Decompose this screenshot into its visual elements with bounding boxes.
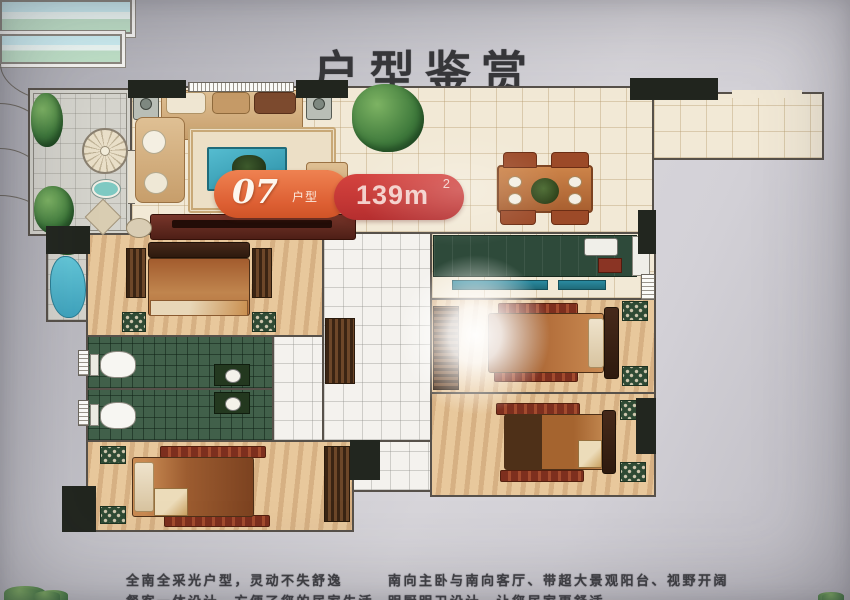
bed-sw-pillows <box>134 462 154 512</box>
kitchen-lower-counter-right <box>558 280 606 290</box>
dining-chair-top-left <box>503 152 537 168</box>
entry-door-opening <box>732 90 802 98</box>
footer-line1-right: 南向主卧与南向客厅、带超大景观阳台、视野开阔 <box>388 570 729 589</box>
bench-se-bottom <box>500 470 584 482</box>
bathroom-sink-1 <box>214 364 250 386</box>
sofa-cushion-3 <box>254 92 296 114</box>
floor-mat-e-bottom <box>622 366 648 386</box>
wardrobe-east <box>433 306 459 390</box>
indoor-palm-plant <box>352 84 424 152</box>
unit-area-value: 139m <box>356 180 429 211</box>
bed-nw-footblanket <box>150 300 248 316</box>
living-room-window <box>188 82 294 92</box>
bedside-table-sw-bottom <box>100 506 126 524</box>
plate-left-top <box>508 176 522 188</box>
toilet-tank-2 <box>90 404 99 426</box>
kitchen-sink <box>584 238 618 256</box>
kitchen-window <box>641 274 655 300</box>
dining-chair-bottom-right <box>551 210 589 225</box>
bathroom-window-1 <box>78 350 89 376</box>
sofa-cushion-2 <box>212 92 250 114</box>
oval-side-table <box>126 218 152 238</box>
floor-mat-se-bottom <box>620 462 646 482</box>
unit-number-label: 户型 <box>292 188 318 205</box>
unit-number-badge: 07 户型 <box>214 170 350 218</box>
bed-east-headboard <box>604 307 619 379</box>
floor-mat-nw-left <box>122 312 146 332</box>
column <box>638 210 656 254</box>
stove <box>598 258 622 273</box>
bathroom-sink-2 <box>214 392 250 414</box>
plate-left-bottom <box>508 193 522 205</box>
bedside-shelf-left <box>126 248 146 298</box>
entry-foyer <box>652 92 824 160</box>
bed-se-folded-blanket <box>578 440 602 468</box>
plate-right-bottom <box>568 193 582 205</box>
toilet-1 <box>100 351 136 378</box>
balcony-door-opening <box>128 150 135 204</box>
column <box>630 78 718 100</box>
column <box>350 440 380 480</box>
column <box>128 80 186 98</box>
tv-screen <box>172 220 332 228</box>
wardrobe-sw <box>324 446 350 522</box>
bay-window-southwest <box>0 0 132 34</box>
floor-mat-nw-right <box>252 312 276 332</box>
footer-line2-right: 明厨明卫设计，让您居家更舒适 <box>388 591 605 600</box>
floor-plan-poster-photo: 户型鉴赏 <box>0 0 850 600</box>
balcony-plant-top <box>31 93 63 147</box>
bed-east-pillows <box>588 318 604 368</box>
plate-right-top <box>568 176 582 188</box>
bed-se-headboard <box>602 410 616 474</box>
column <box>636 398 656 454</box>
floor-mat-e-top <box>622 301 648 321</box>
kitchen-lower-counter-left <box>452 280 548 290</box>
hallway-cabinet <box>325 318 355 384</box>
lamp-right <box>313 98 325 110</box>
teal-ottoman <box>92 180 120 198</box>
unit-area-superscript: 2 <box>443 176 450 191</box>
bedside-table-sw-top <box>100 446 126 464</box>
dining-chair-top-right <box>551 152 589 168</box>
bedside-shelf-right <box>252 248 272 298</box>
unit-number: 07 <box>232 172 278 211</box>
column <box>296 80 348 98</box>
bed-east <box>488 313 604 373</box>
bed-nw-headboard <box>148 242 250 258</box>
toilet-tank-1 <box>90 354 99 376</box>
round-pillow <box>142 130 166 154</box>
lamp-left <box>140 98 152 110</box>
bed-sw-folded-blanket <box>154 488 188 516</box>
column <box>46 226 90 254</box>
throw-blanket <box>144 172 168 194</box>
table-center <box>100 146 110 156</box>
bathroom-window-2 <box>78 400 89 426</box>
unit-area-badge: 139m 2 <box>334 174 464 220</box>
column <box>62 486 96 532</box>
footer-line1-left: 全南全采光户型，灵动不失舒逸 <box>126 570 343 589</box>
hallway-extension <box>272 335 324 442</box>
toilet-2 <box>100 402 136 429</box>
footer-line2-left: 餐客一体设计，方便了您的居家生活 <box>126 591 374 600</box>
dining-centerpiece-plant <box>531 178 559 204</box>
dining-chair-bottom-left <box>500 210 536 225</box>
